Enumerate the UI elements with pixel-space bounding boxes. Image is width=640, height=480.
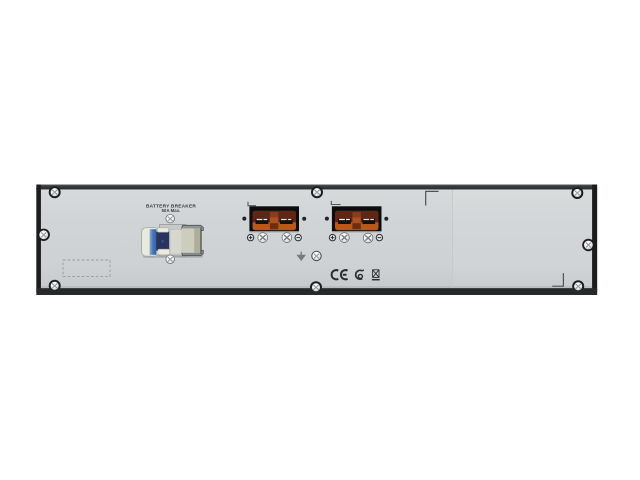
svg-text:50A Max.: 50A Max. [162,208,181,213]
